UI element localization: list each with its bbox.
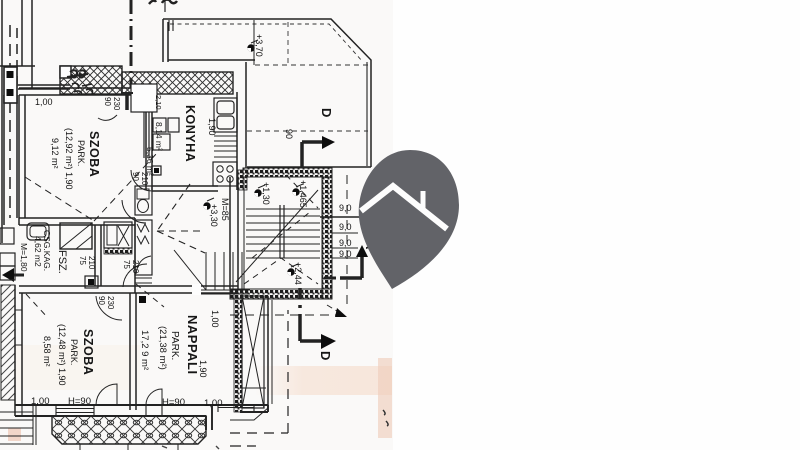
svg-text:(12,92 m²) 1,90: (12,92 m²) 1,90 bbox=[64, 128, 74, 190]
svg-text:75: 75 bbox=[78, 256, 87, 265]
svg-text:90: 90 bbox=[97, 296, 106, 305]
svg-text:1,00: 1,00 bbox=[31, 396, 50, 407]
svg-text:PARK.: PARK. bbox=[169, 331, 180, 360]
svg-text:9,0: 9,0 bbox=[339, 249, 352, 259]
svg-text:+3,30: +3,30 bbox=[209, 204, 219, 227]
svg-text:(21,38 m²): (21,38 m²) bbox=[157, 326, 168, 370]
svg-text:D: D bbox=[319, 108, 334, 117]
svg-text:M=85: M=85 bbox=[220, 198, 230, 221]
svg-text:1,00: 1,00 bbox=[210, 310, 220, 328]
svg-text:230: 230 bbox=[112, 97, 121, 111]
svg-text:+3,70: +3,70 bbox=[254, 34, 264, 57]
svg-text:230: 230 bbox=[106, 296, 115, 310]
svg-text:1,90: 1,90 bbox=[198, 360, 208, 378]
svg-text:9,12 m²: 9,12 m² bbox=[50, 138, 60, 169]
svg-text:H=90: H=90 bbox=[68, 396, 91, 407]
svg-text:+1,30: +1,30 bbox=[261, 182, 271, 205]
svg-text:FSZ.: FSZ. bbox=[56, 250, 68, 274]
svg-text:PARK.: PARK. bbox=[76, 140, 86, 166]
svg-text:H=90: H=90 bbox=[162, 397, 185, 408]
svg-text:75: 75 bbox=[122, 260, 131, 269]
svg-text:9,0: 9,0 bbox=[339, 222, 352, 232]
svg-text:+2,44: +2,44 bbox=[293, 262, 303, 285]
svg-text:8,58 m²: 8,58 m² bbox=[42, 336, 52, 367]
svg-text:KONYHA: KONYHA bbox=[183, 105, 197, 162]
svg-text:SZOBA: SZOBA bbox=[87, 131, 101, 177]
svg-text:4,62 m2: 4,62 m2 bbox=[33, 236, 43, 267]
svg-text:1,00: 1,00 bbox=[204, 398, 223, 409]
svg-text:90: 90 bbox=[284, 129, 294, 139]
svg-text:(12,48 m²) 1,90: (12,48 m²) 1,90 bbox=[57, 324, 67, 386]
svg-text:210: 210 bbox=[131, 260, 140, 274]
svg-text:1,00: 1,00 bbox=[35, 97, 53, 107]
svg-text:210: 210 bbox=[87, 256, 96, 270]
svg-text:M=1,80: M=1,80 bbox=[19, 243, 29, 272]
svg-text:90: 90 bbox=[103, 97, 112, 106]
svg-text:PARK.: PARK. bbox=[69, 339, 79, 365]
svg-text:2,10: 2,10 bbox=[154, 95, 163, 110]
svg-text:9,0: 9,0 bbox=[339, 238, 352, 248]
svg-text:NAPPALI: NAPPALI bbox=[185, 315, 200, 375]
svg-text:9,0: 9,0 bbox=[339, 203, 352, 213]
svg-text:17,2 9 m²: 17,2 9 m² bbox=[139, 330, 150, 370]
svg-text:90: 90 bbox=[131, 172, 140, 181]
svg-text:SZOBA: SZOBA bbox=[81, 329, 95, 375]
svg-text:210: 210 bbox=[140, 172, 149, 186]
svg-text:D: D bbox=[318, 351, 333, 360]
svg-text:1,90: 1,90 bbox=[207, 118, 217, 136]
svg-text:+1,465: +1,465 bbox=[298, 180, 308, 208]
